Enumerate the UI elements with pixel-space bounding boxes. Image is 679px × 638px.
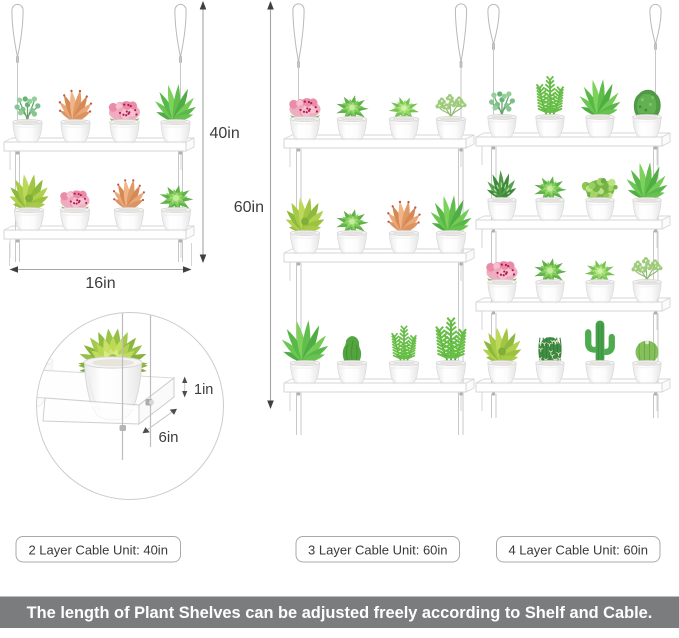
svg-text:1in: 1in: [194, 382, 213, 398]
svg-text:40in: 40in: [210, 125, 240, 142]
svg-text:The length of Plant Shelves ca: The length of Plant Shelves can be adjus…: [27, 604, 653, 622]
svg-text:16in: 16in: [85, 275, 115, 292]
svg-text:2 Layer Cable Unit: 40in: 2 Layer Cable Unit: 40in: [28, 543, 167, 558]
svg-text:6in: 6in: [159, 429, 179, 446]
svg-text:60in: 60in: [234, 199, 264, 216]
svg-text:3 Layer Cable Unit: 60in: 3 Layer Cable Unit: 60in: [308, 543, 447, 558]
svg-text:4 Layer Cable Unit: 60in: 4 Layer Cable Unit: 60in: [508, 543, 647, 558]
